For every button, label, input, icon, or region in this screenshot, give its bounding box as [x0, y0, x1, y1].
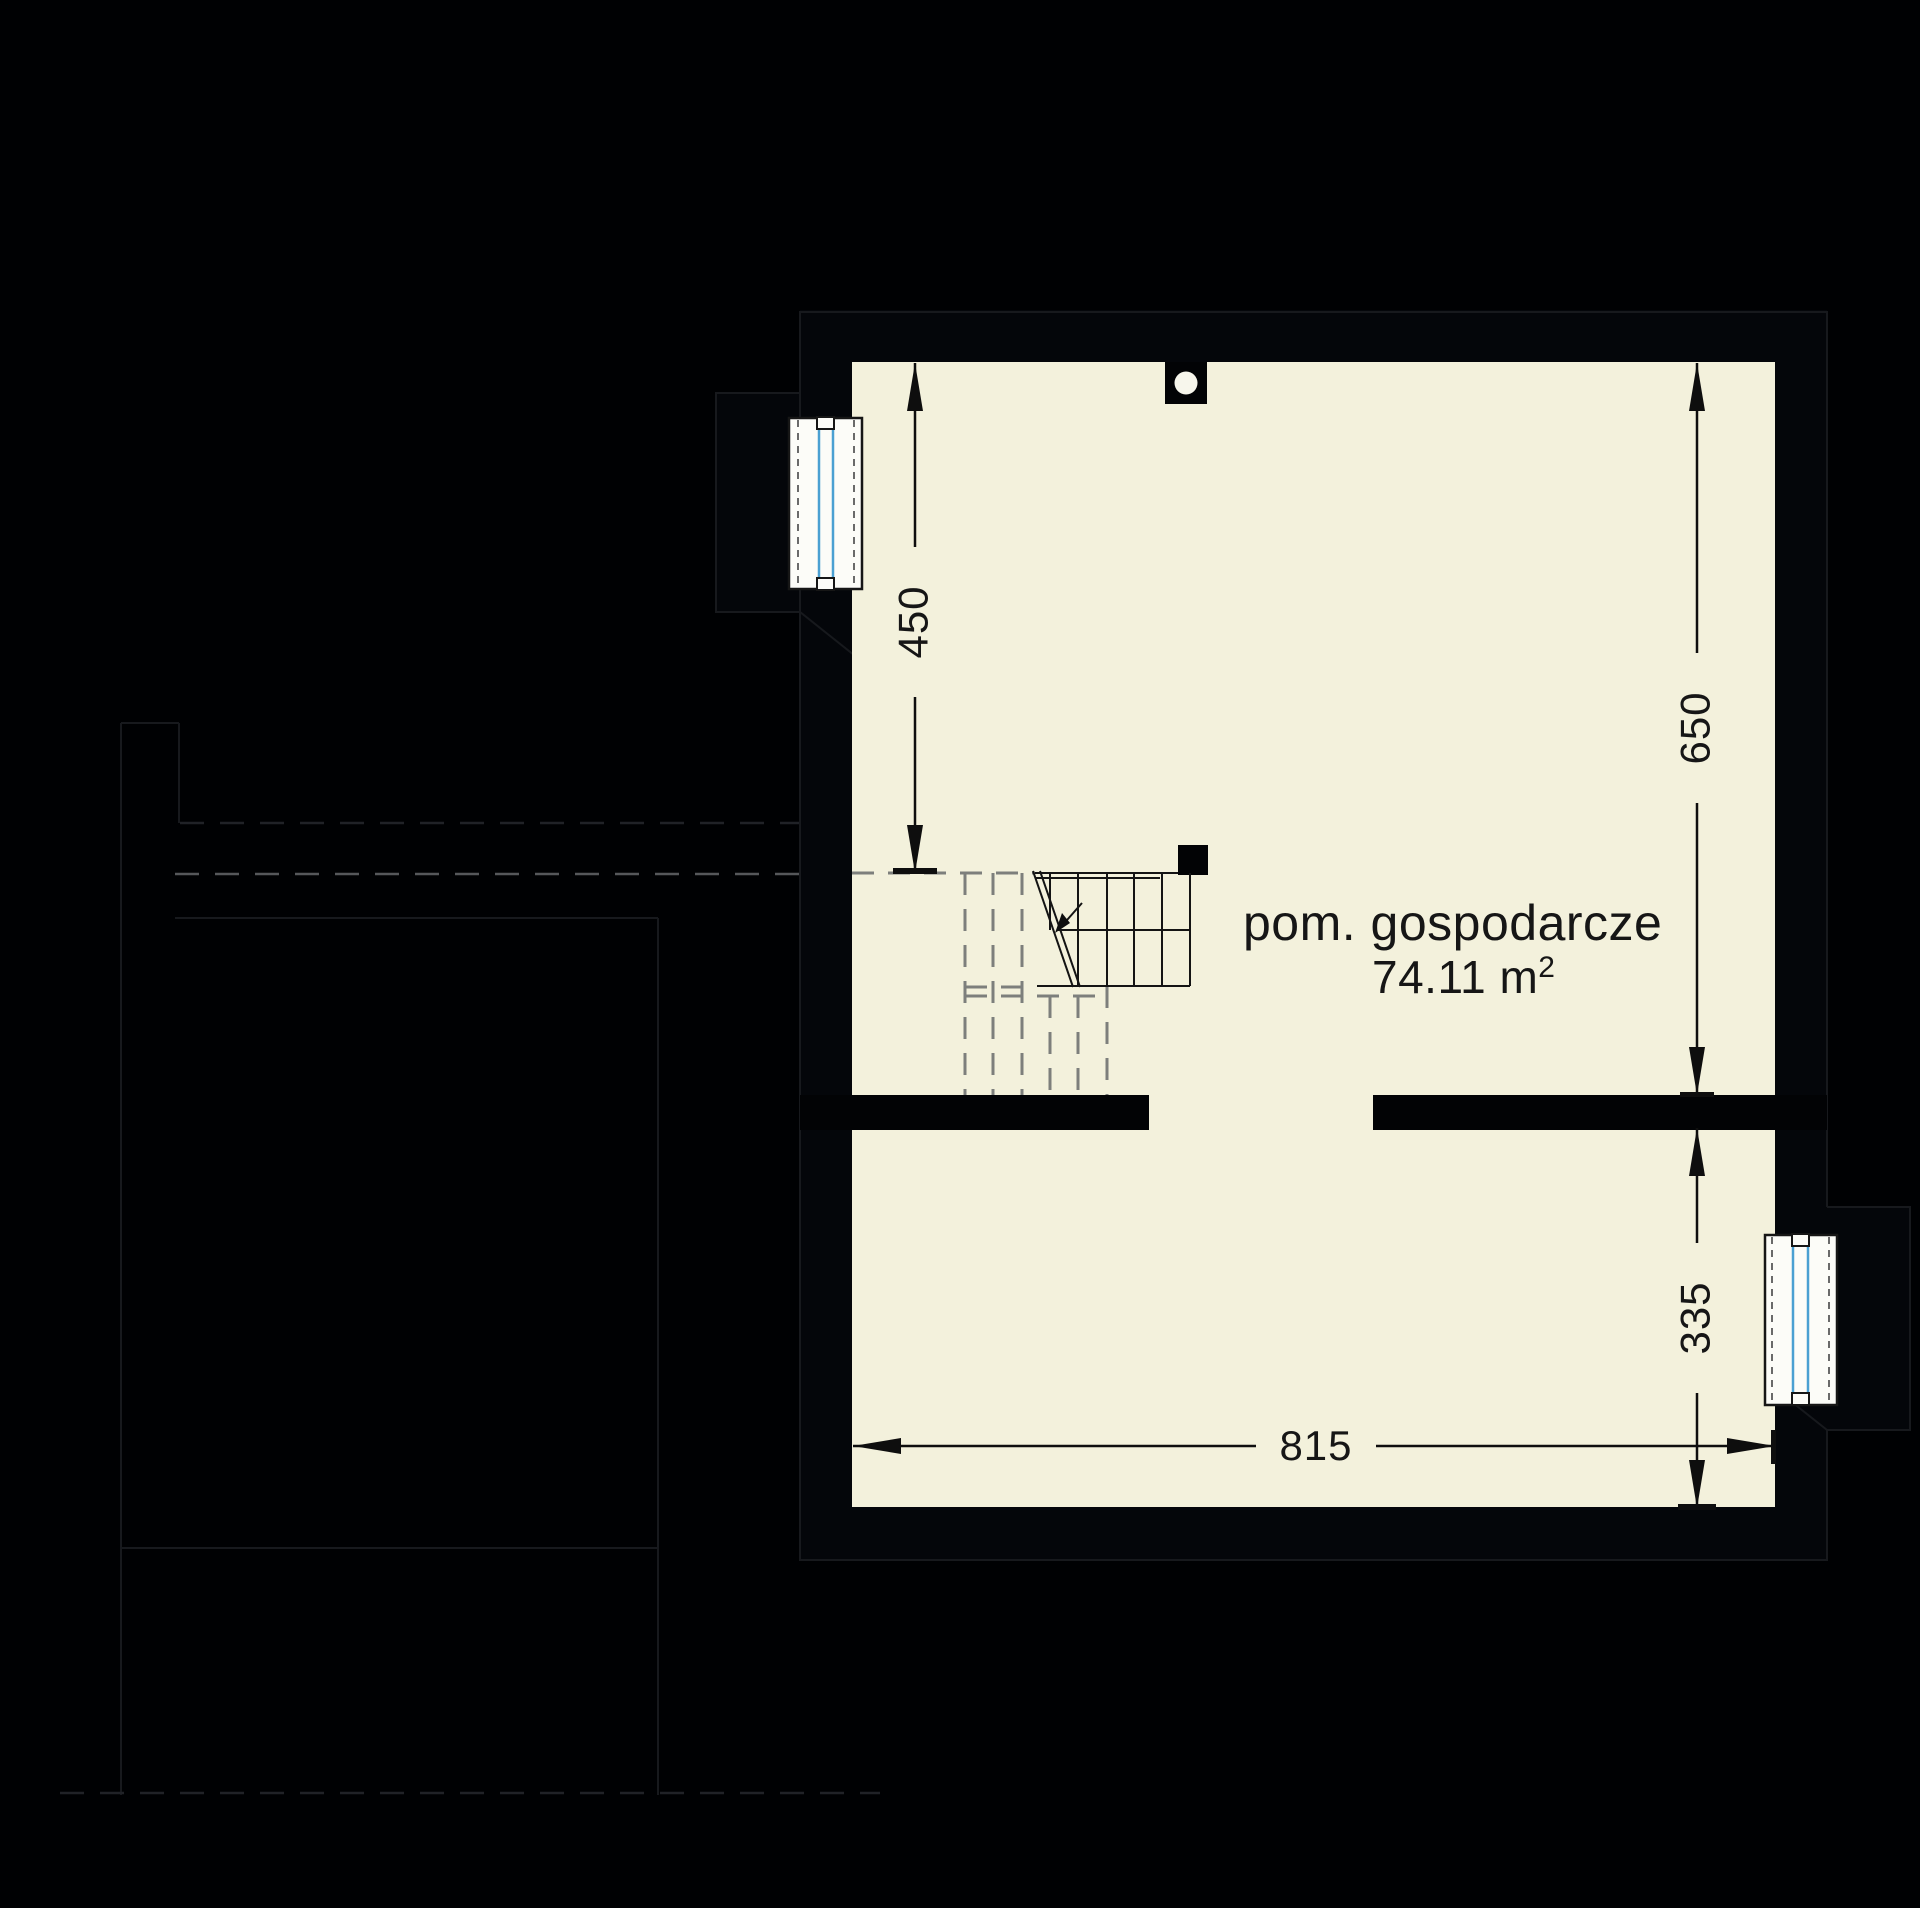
dimension-tick [893, 868, 937, 874]
dimension-label-450: 450 [890, 585, 937, 658]
window-sash [1792, 1234, 1809, 1246]
window-sash [817, 417, 834, 429]
floor-plan: 450 650 335 815 pom. gospodarcze 74.11 m… [0, 0, 1920, 1908]
ghost-structures [60, 723, 880, 1795]
dimension-tick [1771, 1430, 1776, 1464]
dividing-wall-right [1373, 1095, 1827, 1130]
room-area-superscript: 2 [1538, 951, 1555, 984]
window-sash [817, 578, 834, 590]
left-window [789, 417, 862, 590]
dimension-label-815: 815 [1279, 1422, 1352, 1469]
window-frame [789, 418, 862, 589]
column-pillar [1178, 845, 1208, 875]
room-name-label: pom. gospodarcze [1243, 895, 1662, 951]
dimension-tick [1680, 1092, 1714, 1097]
floor-plan-canvas: 450 650 335 815 pom. gospodarcze 74.11 m… [0, 0, 1920, 1908]
right-window-recess [1827, 1207, 1910, 1430]
left-window-recess [716, 393, 800, 612]
room-area-label: 74.11 m2 [1372, 951, 1555, 1003]
window-frame [1765, 1235, 1837, 1405]
vent-circle-icon [1175, 372, 1198, 395]
room-area-value: 74.11 m [1372, 951, 1538, 1003]
dimension-tick [1678, 1504, 1716, 1510]
window-sash [1792, 1393, 1809, 1405]
right-window [1765, 1234, 1837, 1405]
dimension-label-650: 650 [1672, 691, 1719, 764]
dividing-wall-left [800, 1095, 1149, 1130]
dimension-label-335: 335 [1672, 1281, 1719, 1354]
